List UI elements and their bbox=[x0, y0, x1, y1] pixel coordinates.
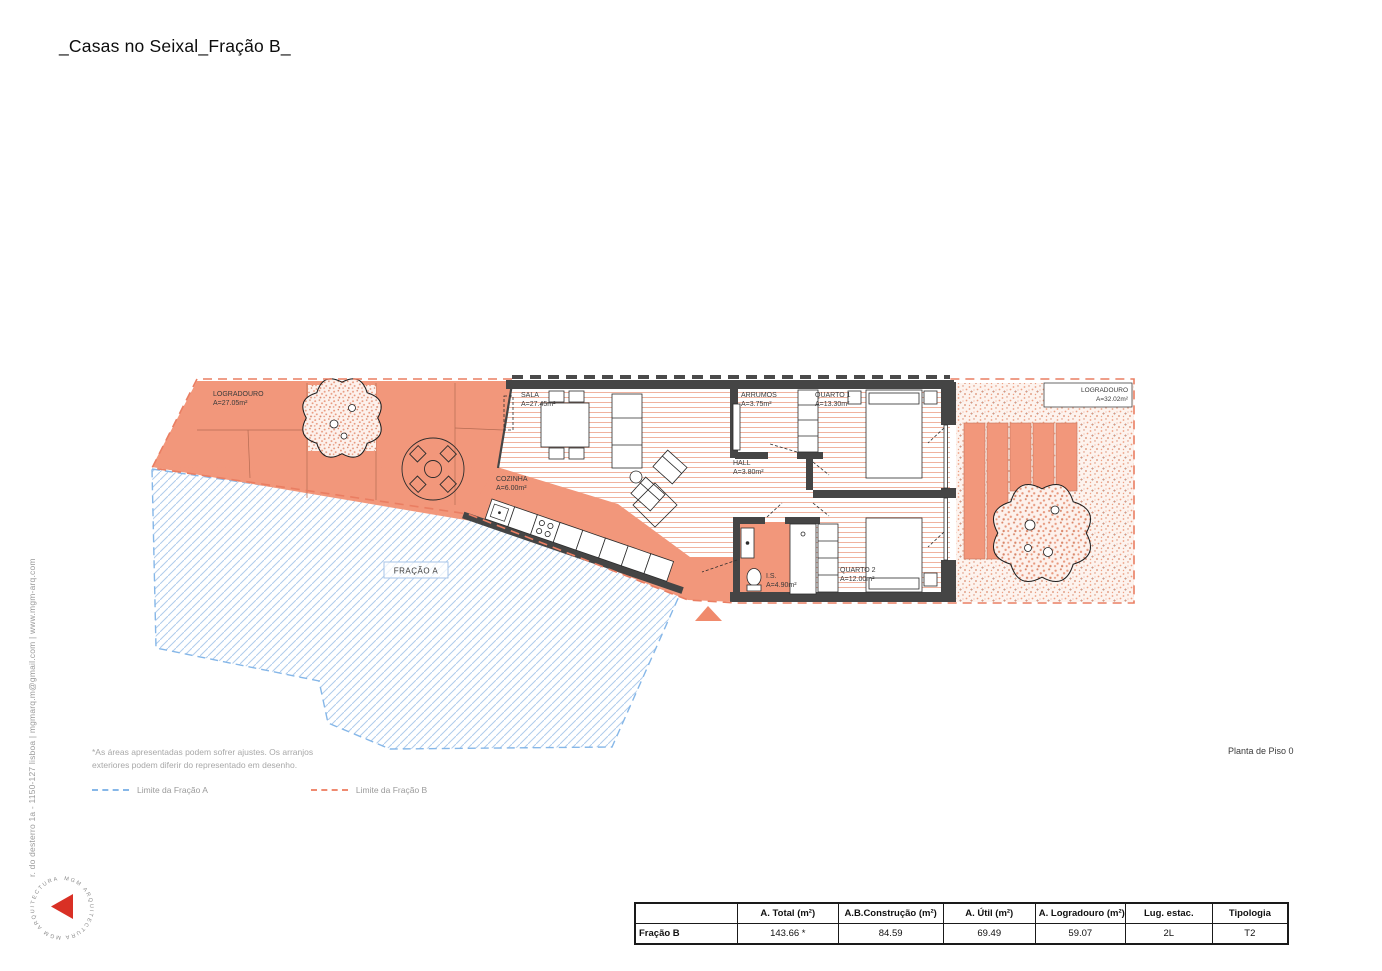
cell-a-logradouro: 59.07 bbox=[1035, 924, 1125, 945]
logo-triangle-icon bbox=[51, 894, 73, 919]
floor-plan-drawing: FRAÇÃO A L bbox=[0, 0, 1382, 971]
room-label-arrumos-area: A=3.75m² bbox=[741, 401, 772, 408]
room-label-cozinha-area: A=6.00m² bbox=[496, 485, 527, 492]
sideboard bbox=[612, 394, 642, 468]
header-lug-estac: Lug. estac. bbox=[1125, 903, 1212, 924]
cell-a-total: 143.66 * bbox=[738, 924, 839, 945]
dining-table bbox=[541, 403, 589, 447]
area-disclaimer-note: *As áreas apresentadas podem sofrer ajus… bbox=[92, 746, 313, 772]
closet-quarto2 bbox=[818, 524, 838, 592]
mgm-logo: MGM ARQUITECTURA MGM ARQUITECTURA bbox=[26, 872, 98, 944]
room-label-logradouro-left-name: LOGRADOURO bbox=[213, 391, 264, 398]
drawing-title: Planta de Piso 0 bbox=[1228, 746, 1294, 756]
room-label-cozinha-name: COZINHA bbox=[496, 476, 528, 483]
right-courtyard: LOGRADOURO A=32.02m² bbox=[956, 383, 1134, 602]
limit-fracao-a-dash-icon bbox=[92, 789, 129, 791]
room-label-quarto1-name: QUARTO 1 bbox=[815, 392, 851, 399]
cell-ab-construcao: 84.59 bbox=[838, 924, 943, 945]
cell-lug-estac: 2L bbox=[1125, 924, 1212, 945]
room-label-sala-name: SALA bbox=[521, 392, 539, 399]
cell-a-util: 69.49 bbox=[943, 924, 1035, 945]
header-a-total: A. Total (m²) bbox=[738, 903, 839, 924]
room-label-quarto2-name: QUARTO 2 bbox=[840, 567, 876, 574]
header-empty bbox=[635, 903, 738, 924]
room-label-is-name: I.S. bbox=[766, 573, 777, 580]
entrance-marker bbox=[695, 606, 722, 621]
room-label-quarto2-area: A=12.00m² bbox=[840, 576, 875, 583]
room-label-quarto1-area: A=13.30m² bbox=[815, 401, 850, 408]
areas-table-header-row: A. Total (m²) A.B.Construção (m²) A. Úti… bbox=[635, 903, 1288, 924]
header-tipologia: Tipologia bbox=[1212, 903, 1288, 924]
cell-tipologia: T2 bbox=[1212, 924, 1288, 945]
room-label-hall-name: HALL bbox=[733, 460, 751, 467]
room-label-logradouro-right-area: A=32.02m² bbox=[1096, 396, 1129, 403]
side-table bbox=[630, 471, 642, 483]
room-label-hall-area: A=3.80m² bbox=[733, 469, 764, 476]
room-label-arrumos-name: ARRUMOS bbox=[741, 392, 777, 399]
areas-table-data-row: Fração B 143.66 * 84.59 69.49 59.07 2L T… bbox=[635, 924, 1288, 945]
legend-label-fracao-b: Limite da Fração B bbox=[356, 785, 427, 795]
note-line-1: *As áreas apresentadas podem sofrer ajus… bbox=[92, 746, 313, 759]
cell-fracao: Fração B bbox=[635, 924, 738, 945]
room-label-is-area: A=4.90m² bbox=[766, 582, 797, 589]
fracao-a-label: FRAÇÃO A bbox=[394, 567, 439, 576]
note-line-2: exteriores podem diferir do representado… bbox=[92, 759, 313, 772]
room-label-sala-area: A=27.45m² bbox=[521, 401, 556, 408]
header-a-logradouro: A. Logradouro (m²) bbox=[1035, 903, 1125, 924]
legend-label-fracao-a: Limite da Fração A bbox=[137, 785, 208, 795]
closet-quarto1 bbox=[798, 390, 818, 452]
header-a-util: A. Útil (m²) bbox=[943, 903, 1035, 924]
room-label-logradouro-right-name: LOGRADOURO bbox=[1081, 387, 1128, 394]
limit-fracao-b-dash-icon bbox=[311, 789, 348, 791]
areas-table: A. Total (m²) A.B.Construção (m²) A. Úti… bbox=[634, 902, 1289, 945]
legend: Limite da Fração A Limite da Fração B bbox=[92, 785, 427, 795]
header-ab-construcao: A.B.Construção (m²) bbox=[838, 903, 943, 924]
room-label-logradouro-left-area: A=27.05m² bbox=[213, 400, 248, 407]
